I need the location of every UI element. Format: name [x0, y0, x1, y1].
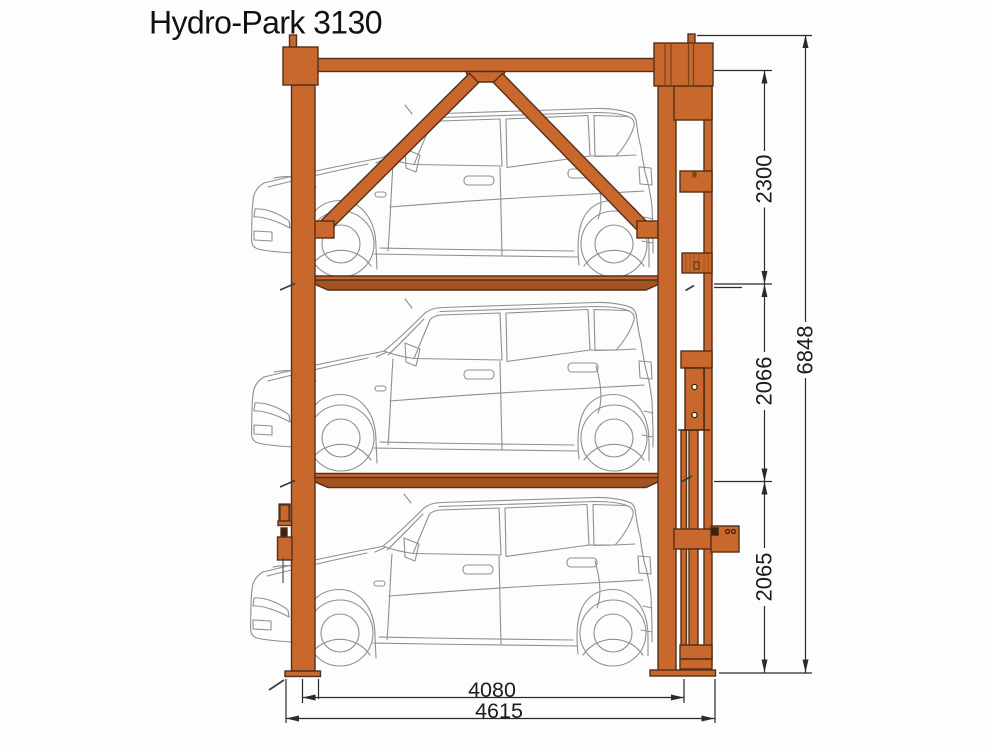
svg-text:2300: 2300 [752, 155, 777, 204]
svg-text:6848: 6848 [793, 326, 818, 375]
svg-text:2066: 2066 [752, 357, 777, 406]
svg-text:4615: 4615 [475, 699, 523, 723]
svg-text:2065: 2065 [752, 553, 777, 602]
svg-text:Hydro-Park 3130: Hydro-Park 3130 [149, 5, 382, 41]
